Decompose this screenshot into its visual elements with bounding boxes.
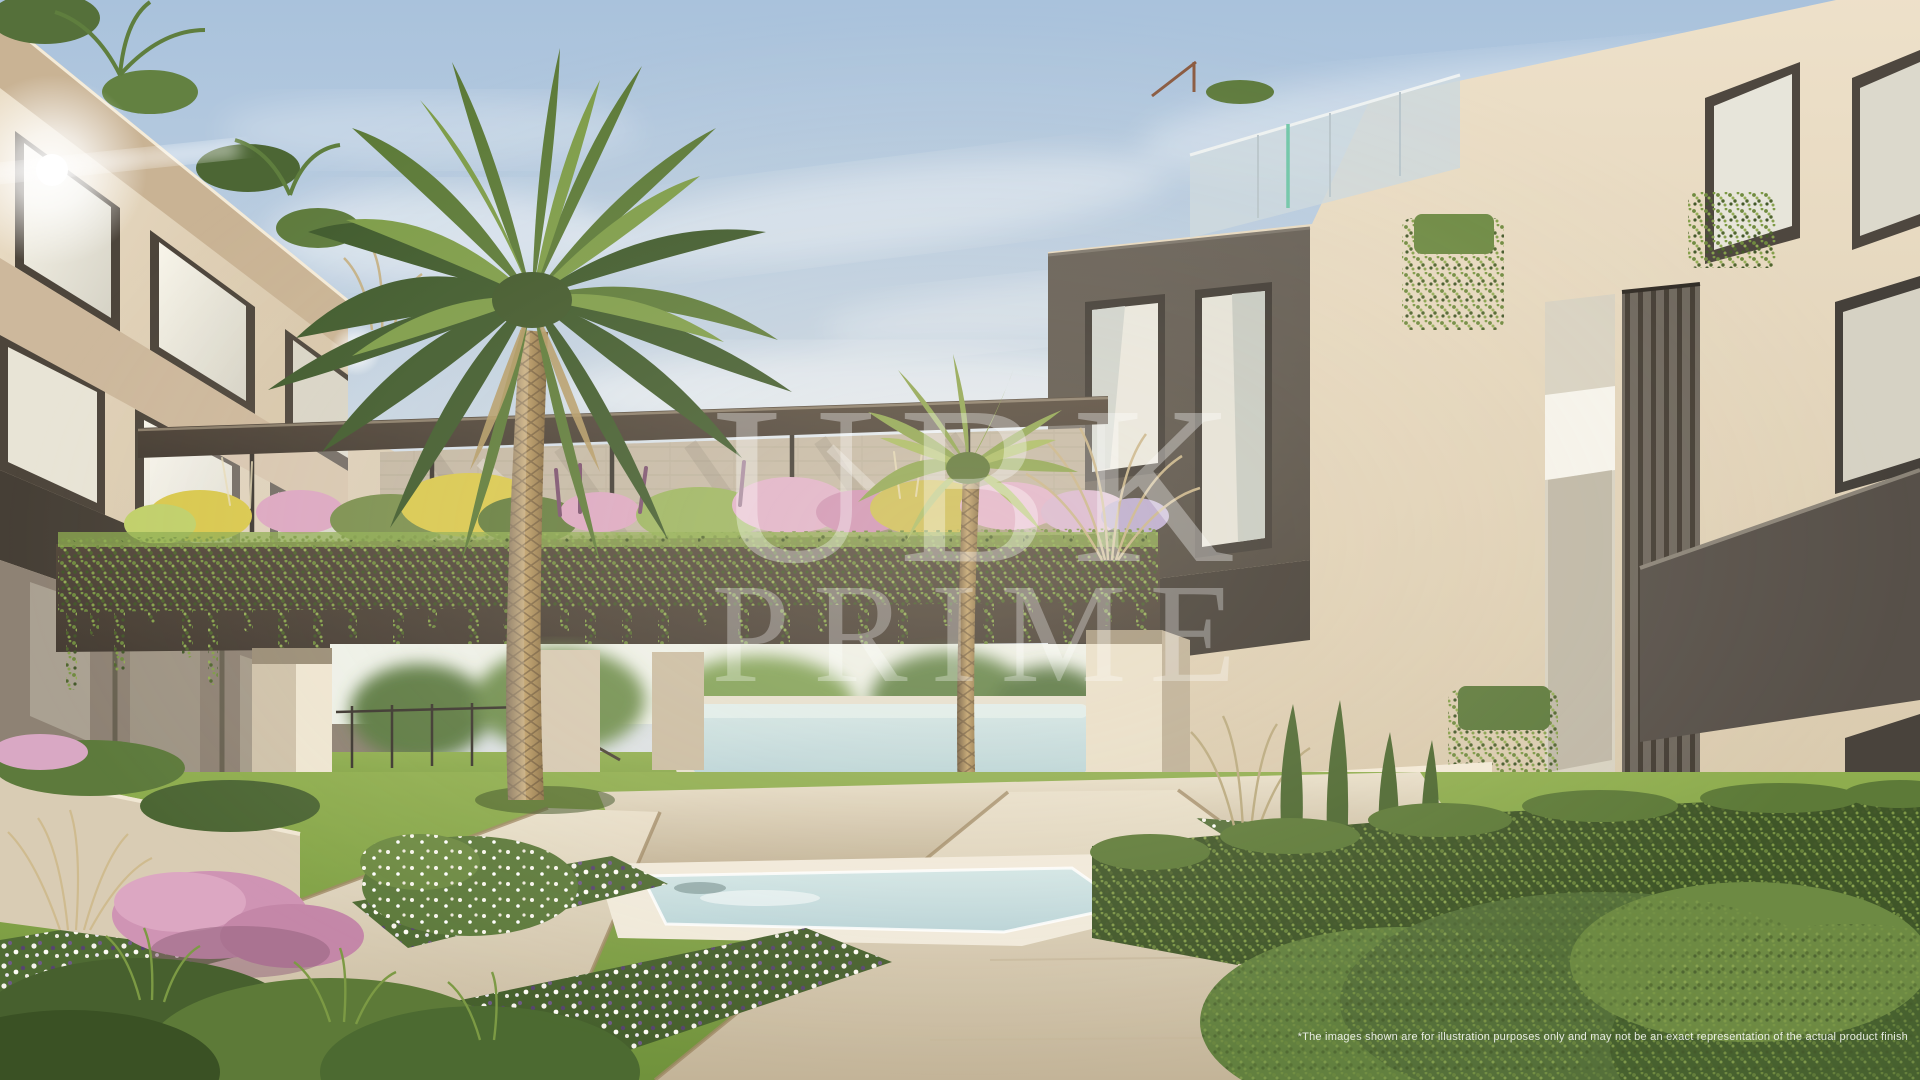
scene-illustration bbox=[0, 0, 1920, 1080]
disclaimer-text: *The images shown are for illustration p… bbox=[1298, 1031, 1908, 1043]
warm-haze-overlay bbox=[0, 0, 1920, 1080]
render-canvas: UBK PRIME *The images shown are for illu… bbox=[0, 0, 1920, 1080]
